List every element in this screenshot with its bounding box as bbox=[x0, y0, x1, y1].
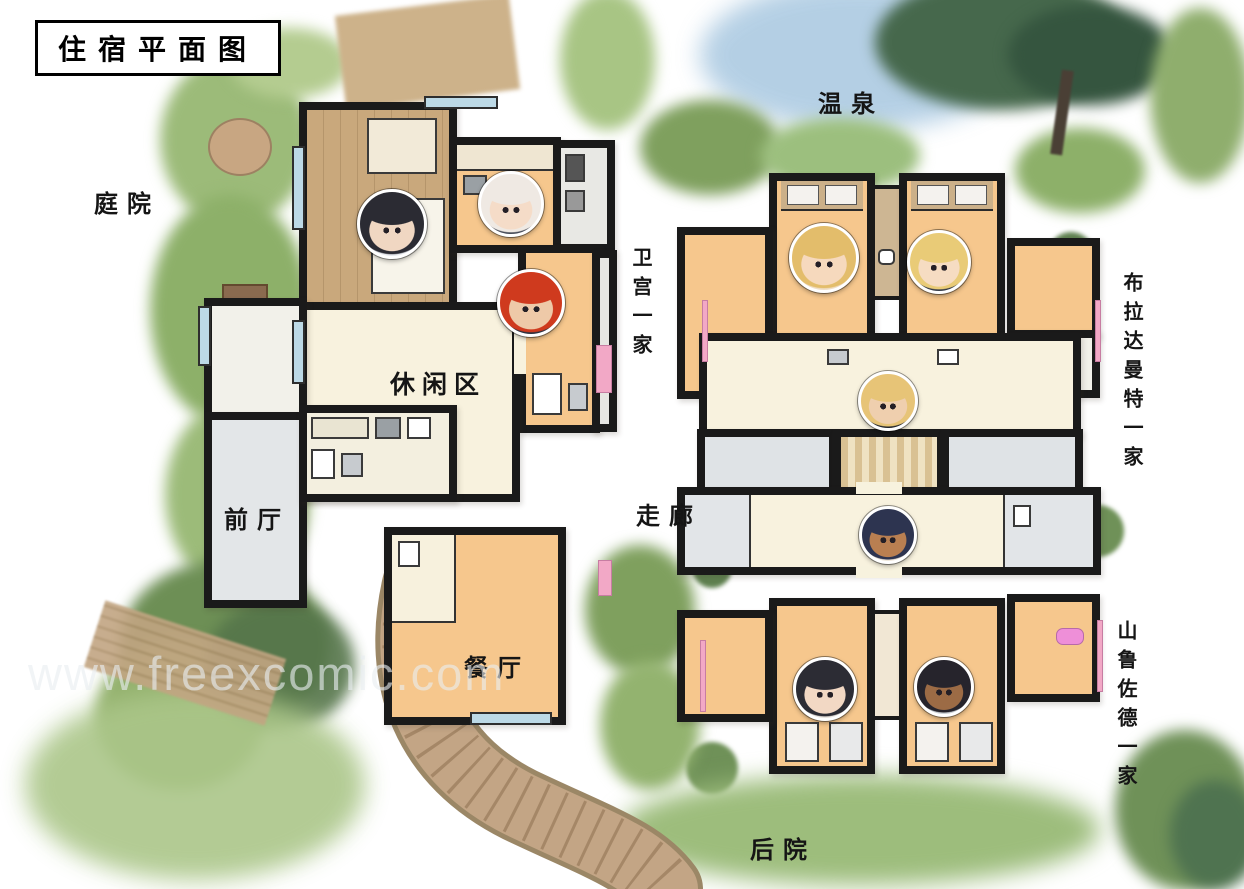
window bbox=[292, 146, 305, 230]
room-kitchen-strip bbox=[299, 405, 457, 502]
washer bbox=[341, 453, 363, 477]
page-title: 住宿平面图 bbox=[35, 20, 281, 76]
bed bbox=[785, 722, 819, 762]
blonde-woman-wavy-avatar bbox=[789, 223, 859, 293]
room-utility-annex bbox=[553, 140, 615, 252]
door-opening bbox=[856, 482, 902, 494]
bathtub bbox=[532, 373, 562, 415]
bed bbox=[959, 722, 993, 762]
toilet bbox=[1013, 505, 1031, 527]
pink-fixture bbox=[596, 345, 612, 393]
pink-item bbox=[1056, 628, 1084, 645]
label-courtyard: 庭院 bbox=[94, 184, 160, 219]
room-wing-right-bottom bbox=[1007, 594, 1100, 702]
label-emiya-family: 卫宫一家 bbox=[626, 247, 655, 363]
fridge bbox=[565, 154, 585, 182]
pink-rail bbox=[702, 300, 708, 362]
round-garden-table bbox=[208, 118, 272, 176]
bed bbox=[829, 722, 863, 762]
cabinet bbox=[398, 541, 420, 567]
door-opening bbox=[856, 566, 902, 578]
pillow bbox=[825, 185, 857, 205]
room-wing-right-top bbox=[1007, 238, 1100, 338]
label-corridor: 走廊 bbox=[636, 496, 702, 531]
label-backyard: 后院 bbox=[750, 830, 816, 865]
room-wing-left-bottom bbox=[677, 610, 773, 722]
dark-skinned-child-avatar bbox=[914, 657, 974, 717]
room-mid-gray-left bbox=[697, 429, 837, 495]
pink-rail bbox=[1097, 620, 1103, 692]
window bbox=[198, 306, 211, 366]
room-bath-strip bbox=[592, 250, 617, 432]
pillow bbox=[917, 185, 949, 205]
sofa bbox=[367, 118, 437, 174]
dark-skinned-woman-gold-headdress-avatar bbox=[859, 506, 917, 564]
window bbox=[470, 712, 552, 725]
bed bbox=[915, 722, 949, 762]
pink-rail bbox=[700, 640, 706, 712]
sink bbox=[937, 349, 959, 365]
pink-fixture bbox=[598, 560, 612, 596]
counter bbox=[311, 417, 369, 439]
room-dining bbox=[384, 527, 566, 725]
room-mid-gray-right bbox=[941, 429, 1083, 495]
cabinet bbox=[565, 190, 585, 212]
label-front-hall: 前厅 bbox=[224, 500, 290, 535]
cabinet bbox=[568, 383, 588, 411]
side-room bbox=[1003, 495, 1093, 567]
black-haired-man-avatar bbox=[357, 189, 427, 259]
door-opening bbox=[514, 330, 526, 374]
blonde-child-avatar bbox=[858, 371, 918, 431]
red-haired-boy-avatar bbox=[497, 269, 565, 337]
white-haired-woman-avatar bbox=[478, 171, 544, 237]
blonde-woman-crown-avatar bbox=[907, 230, 971, 294]
label-dining: 餐厅 bbox=[464, 648, 530, 683]
window bbox=[424, 96, 498, 109]
label-leisure: 休闲区 bbox=[390, 365, 486, 401]
pillow bbox=[787, 185, 819, 205]
black-haired-teen-avatar bbox=[793, 657, 857, 721]
sink bbox=[827, 349, 849, 365]
bed-headboard bbox=[781, 181, 863, 211]
label-hot-spring: 温泉 bbox=[818, 84, 884, 119]
label-bradamante-family: 布拉达曼特一家 bbox=[1117, 272, 1146, 475]
counter bbox=[457, 145, 553, 171]
floor-plan-illustration: 住宿平面图 庭院 温泉 休闲区 前厅 走廊 餐厅 后院 卫宫一家 布拉达曼特一家… bbox=[0, 0, 1244, 889]
stove bbox=[375, 417, 401, 439]
bed-headboard bbox=[911, 181, 993, 211]
toilet bbox=[311, 449, 335, 479]
pink-rail bbox=[1095, 300, 1101, 362]
pillow bbox=[955, 185, 987, 205]
wash-basin bbox=[878, 249, 895, 265]
window bbox=[292, 320, 305, 384]
label-scheherazade-family: 山鲁佐德一家 bbox=[1111, 620, 1140, 794]
sink bbox=[407, 417, 431, 439]
